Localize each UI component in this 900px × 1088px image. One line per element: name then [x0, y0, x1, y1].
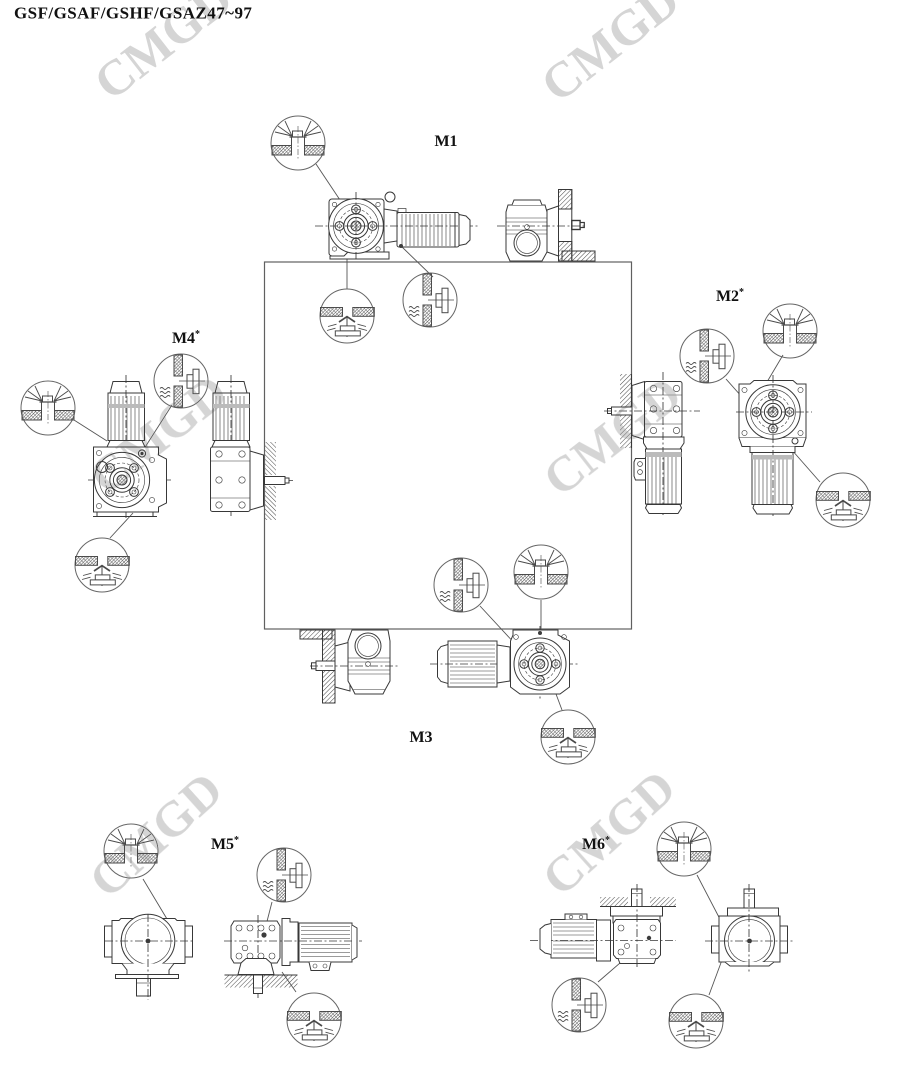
svg-text:M3: M3 — [409, 729, 432, 746]
svg-text:CMGD: CMGD — [530, 0, 689, 113]
svg-text:M5*: M5* — [211, 835, 239, 853]
svg-text:M2*: M2* — [716, 287, 744, 305]
svg-text:M4*: M4* — [172, 329, 200, 347]
svg-text:CMGD: CMGD — [78, 761, 233, 909]
svg-text:M1: M1 — [434, 133, 457, 150]
